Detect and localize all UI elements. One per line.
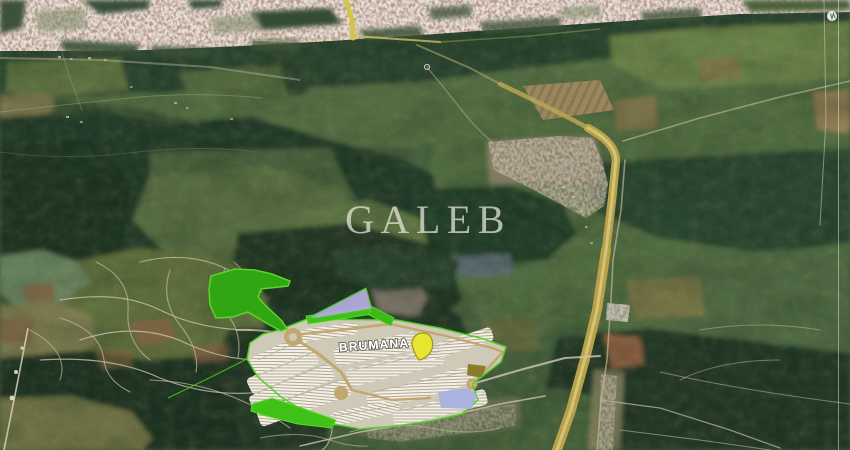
svg-text:GALEB: GALEB: [345, 197, 511, 242]
